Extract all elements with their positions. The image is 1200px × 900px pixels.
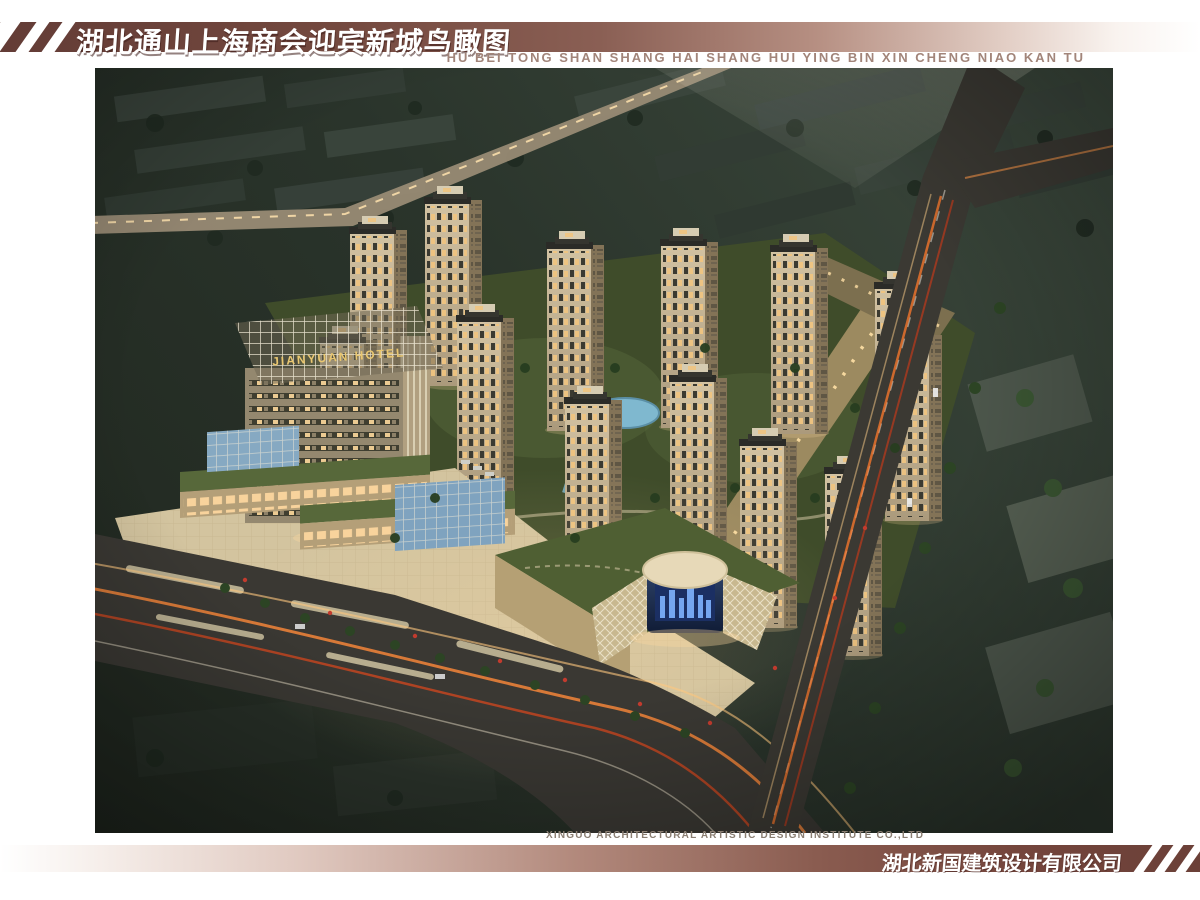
presentation-board: 湖北通山上海商会迎宾新城鸟瞰图 HU BEI TONG SHAN SHANG H…	[0, 0, 1200, 900]
footer-diagonal-stripes-icon	[1143, 845, 1200, 872]
vignette-overlay	[95, 68, 1113, 833]
header-diagonal-stripes-icon	[4, 22, 74, 52]
aerial-rendering: JIANYUAN HOTEL	[95, 68, 1113, 833]
company-name: 湖北新国建筑设计有限公司	[881, 847, 1124, 876]
design-institute-credit: XINGUO ARCHITECTURAL ARTISTIC DESIGN INS…	[546, 830, 924, 841]
page-subtitle-pinyin: HU BEI TONG SHAN SHANG HAI SHANG HUI YIN…	[447, 50, 1085, 65]
stripe-icon	[41, 22, 75, 52]
